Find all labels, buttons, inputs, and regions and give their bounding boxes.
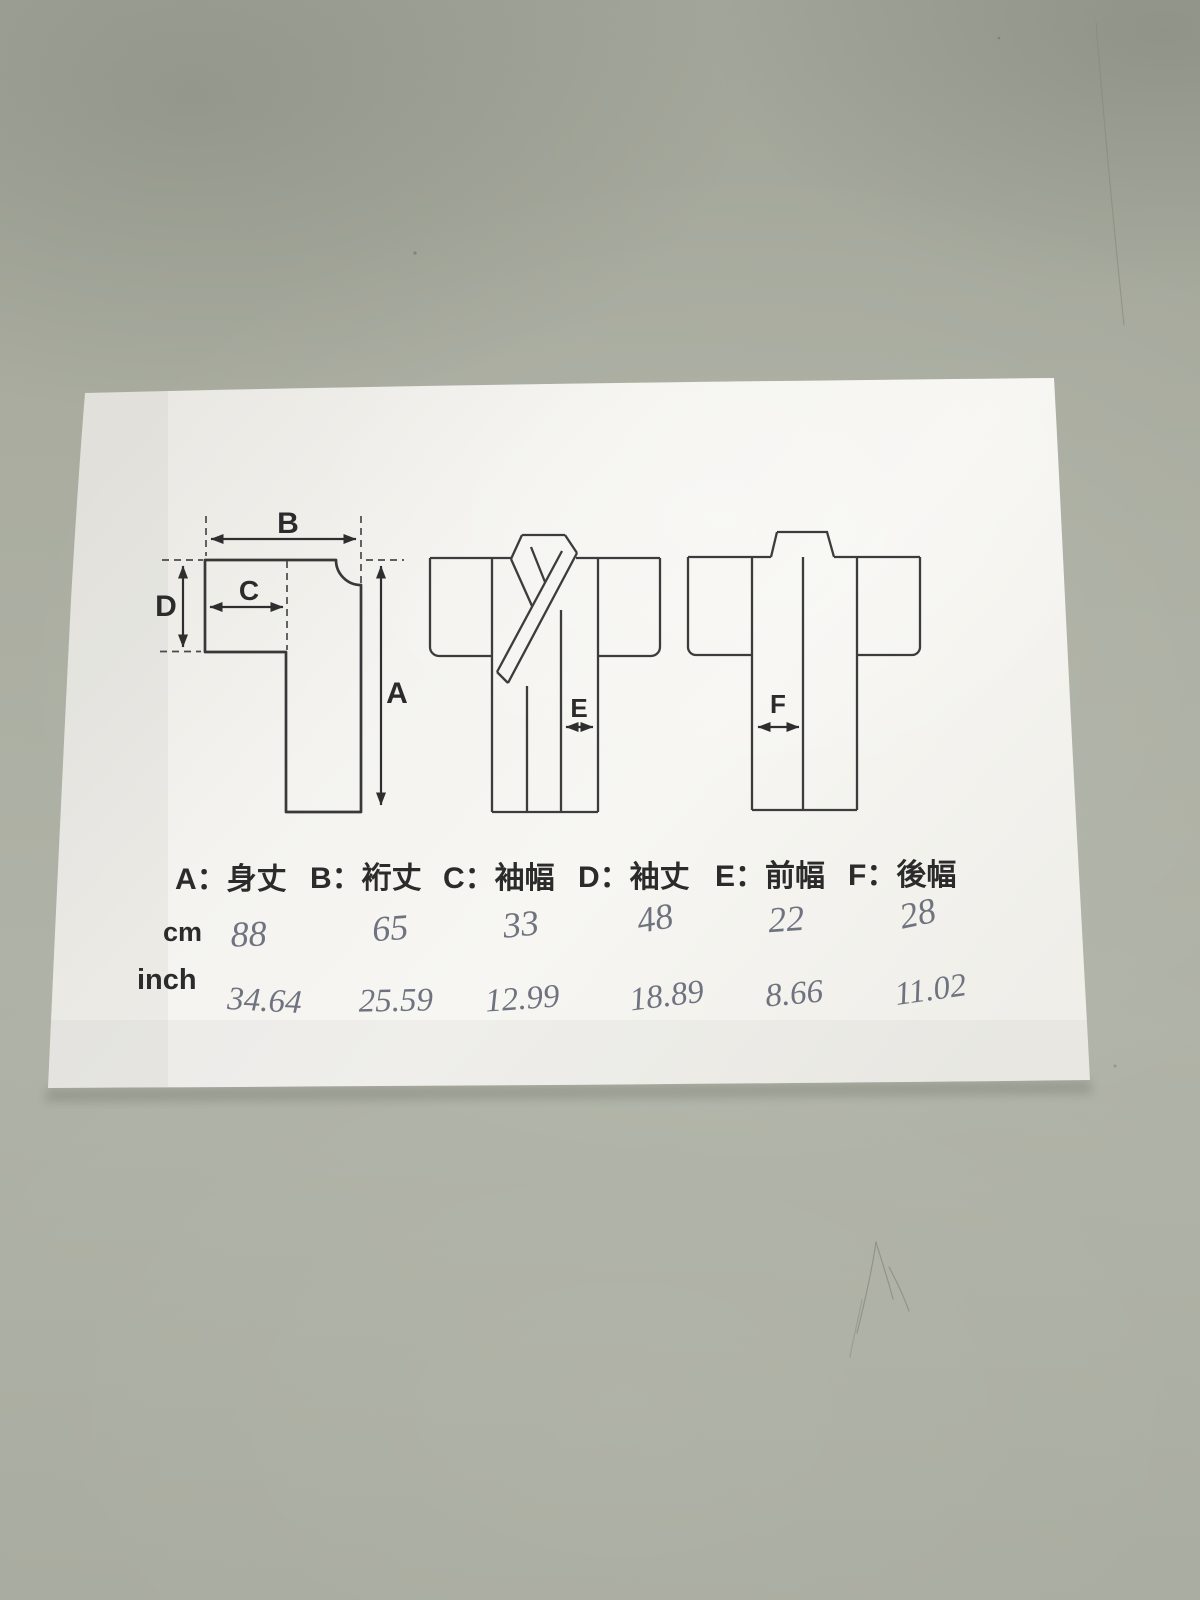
cm-value-d: 48: [634, 895, 676, 941]
diagram-letter-c: C: [239, 575, 259, 606]
table-speck: [1114, 1065, 1117, 1068]
inch-value-e: 8.66: [764, 974, 825, 1015]
legend-item-a: A：身丈: [175, 863, 287, 896]
inch-value-c: 12.99: [484, 978, 561, 1019]
cm-value-c: 33: [500, 902, 541, 946]
size-chart-sheet-graphic: B D C A E: [0, 0, 1200, 1600]
table-speck: [998, 37, 1001, 40]
legend-item-c: C：袖幅: [443, 861, 555, 895]
inch-unit-label: inch: [137, 964, 197, 996]
cm-unit-label: cm: [163, 917, 202, 947]
photo-of-size-chart: B D C A E: [0, 0, 1200, 1600]
legend-item-e: E：前幅: [715, 860, 825, 893]
diagram-letter-e: E: [570, 693, 587, 723]
diagram-letter-a: A: [386, 677, 408, 710]
table-speck: [413, 251, 416, 254]
diagram-letter-f: F: [770, 689, 786, 719]
inch-value-a: 34.64: [226, 981, 303, 1021]
cm-value-e: 22: [767, 898, 806, 940]
cm-value-b: 65: [371, 907, 410, 949]
diagram-letter-b: B: [277, 507, 299, 540]
cm-value-a: 88: [230, 913, 267, 954]
legend-item-b: B：裄丈: [310, 862, 422, 895]
diagram-letter-d: D: [155, 590, 177, 623]
legend-item-f: F：後幅: [848, 859, 956, 892]
inch-value-b: 25.59: [358, 982, 433, 1019]
legend-item-d: D：袖丈: [578, 860, 690, 894]
